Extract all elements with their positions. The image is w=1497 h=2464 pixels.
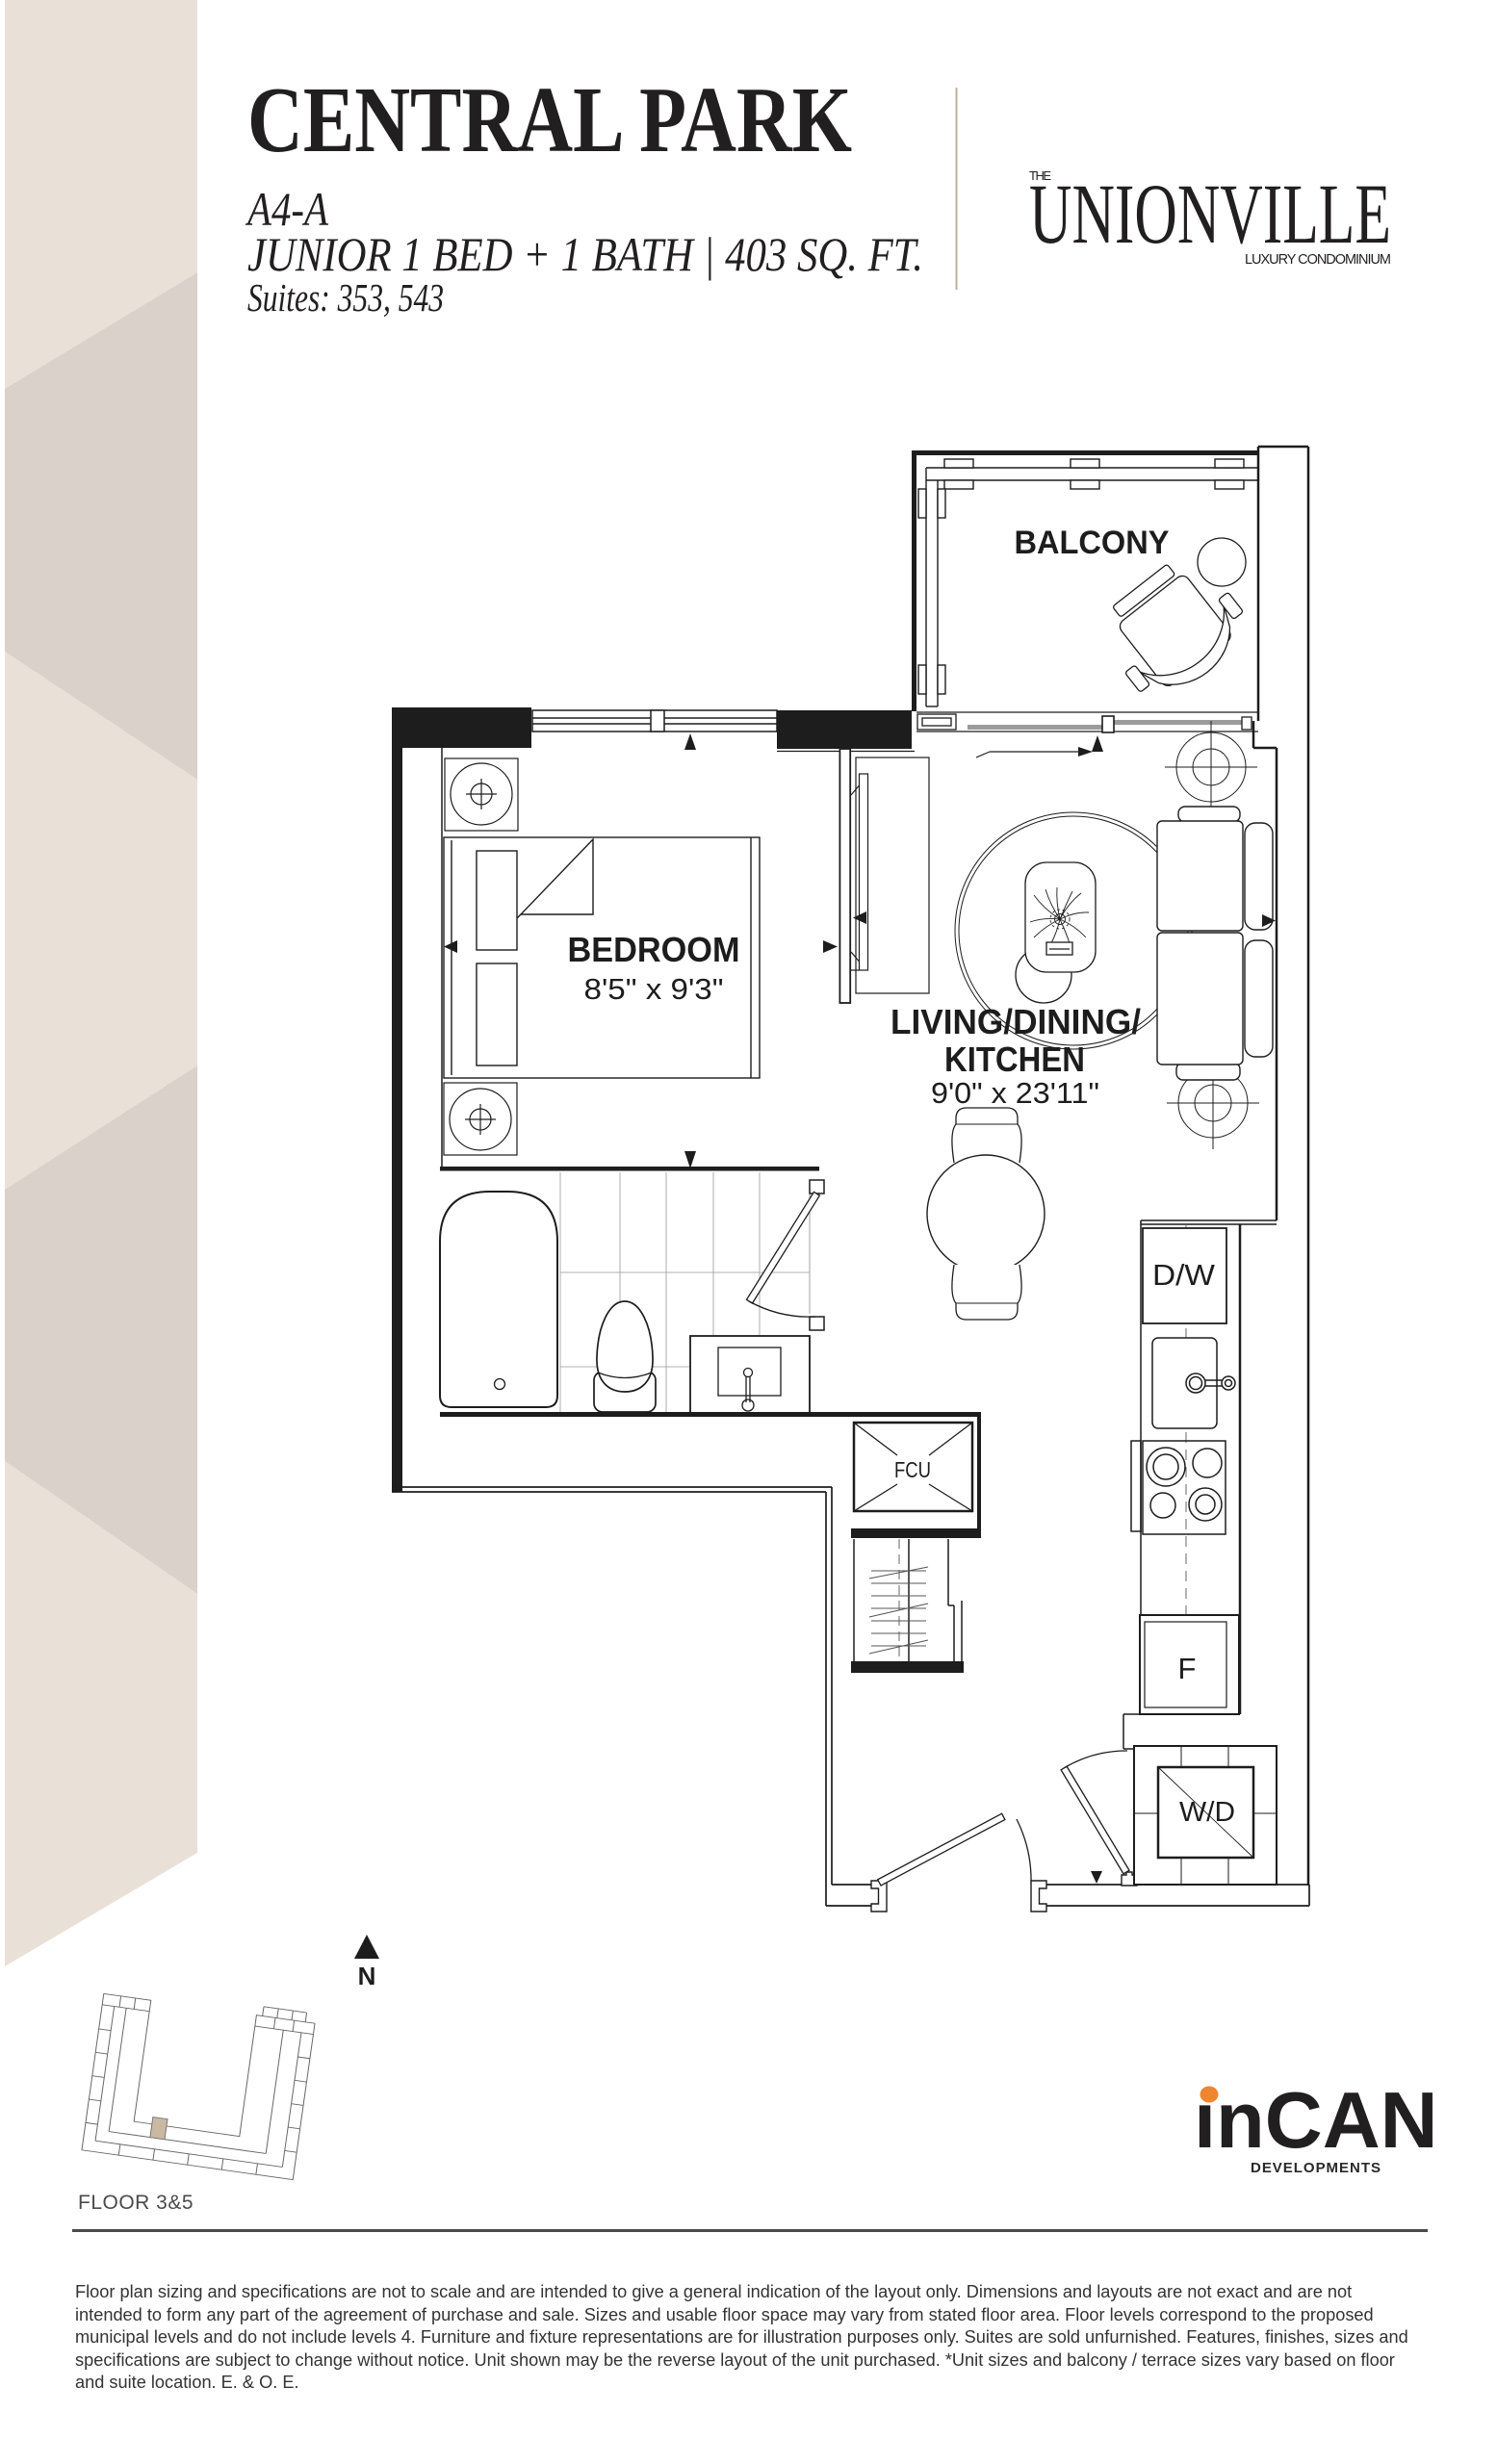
svg-text:9'0" x 23'11": 9'0" x 23'11" [931, 1076, 1099, 1110]
svg-text:DEVELOPMENTS: DEVELOPMENTS [1251, 2160, 1381, 2176]
svg-text:LIVING/DINING/: LIVING/DINING/ [890, 1002, 1141, 1041]
svg-text:FLOOR 3&5: FLOOR 3&5 [78, 2192, 194, 2214]
svg-text:BEDROOM: BEDROOM [568, 930, 740, 969]
svg-text:N: N [358, 1962, 376, 1990]
svg-text:D/W: D/W [1152, 1258, 1216, 1292]
svg-text:W/D: W/D [1179, 1797, 1235, 1828]
svg-text:ınCAN: ınCAN [1194, 2075, 1438, 2165]
svg-text:8'5" x 9'3": 8'5" x 9'3" [584, 972, 724, 1006]
svg-text:F: F [1178, 1652, 1197, 1685]
svg-text:BALCONY: BALCONY [1015, 525, 1170, 561]
svg-text:KITCHEN: KITCHEN [944, 1039, 1085, 1079]
svg-text:FCU: FCU [894, 1457, 931, 1482]
